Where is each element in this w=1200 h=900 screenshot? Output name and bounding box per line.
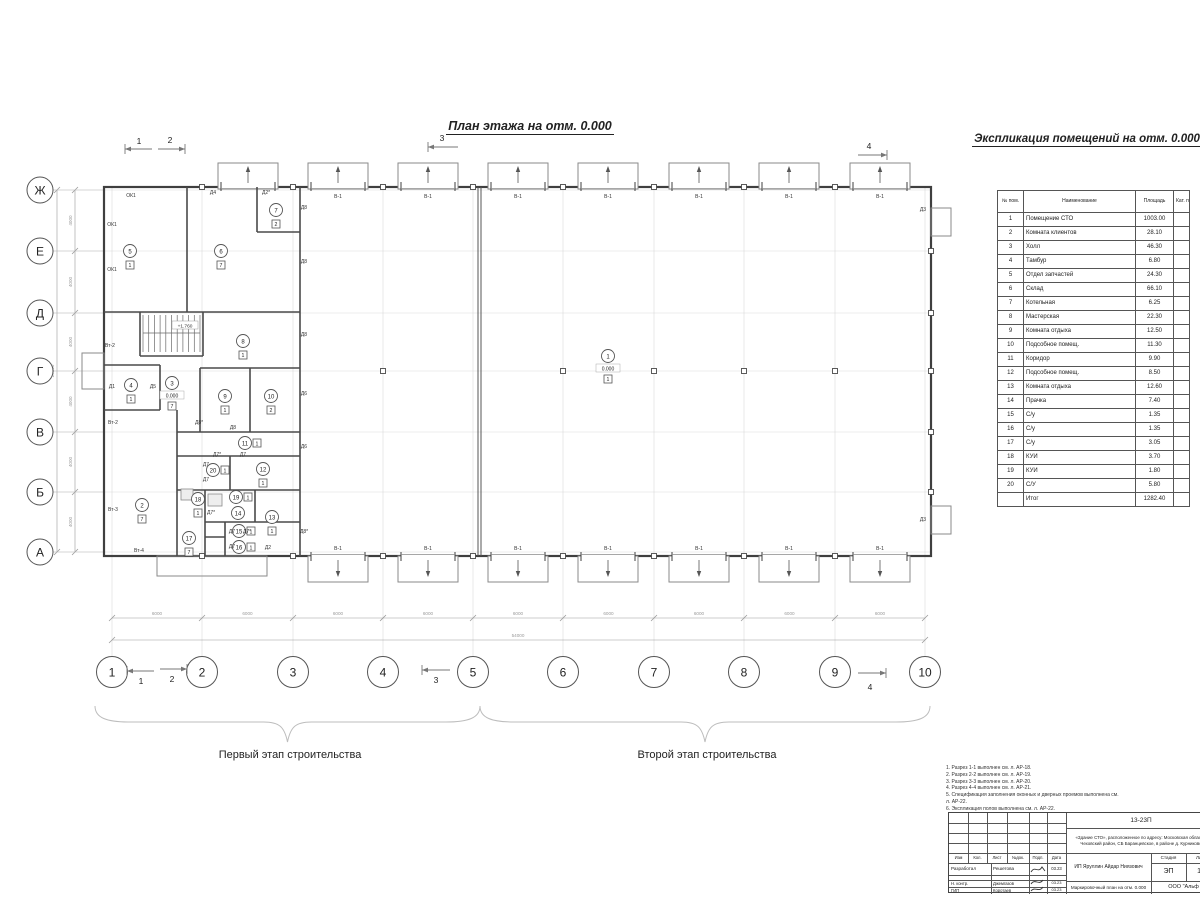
table-row: 3Холл46.30 <box>998 241 1190 255</box>
dim-bay-label: 6000 <box>603 611 614 616</box>
stamp-role-3: ГИП <box>949 887 991 894</box>
room-type-number: 1 <box>224 468 227 474</box>
door-label: Д8 <box>301 259 307 265</box>
stamp-col-dok: №док. <box>1007 853 1029 863</box>
room-number: 17 <box>186 536 193 542</box>
column-marker <box>742 185 747 190</box>
col-header-name: Наименование <box>1024 191 1136 213</box>
section-arrowhead <box>125 147 131 152</box>
dim-bay-label: 6000 <box>152 611 163 616</box>
stamp-name-1: Решетова <box>991 863 1029 875</box>
dim-total-label: 54000 <box>512 633 525 638</box>
table-total-row: Итог1282.40 <box>998 493 1190 507</box>
drawing-sheet: 6000600060006000600060006000600060005400… <box>0 0 1200 900</box>
note-line: 4. Разрез 4-4 выполнен см. л. АР-21. <box>946 785 1124 792</box>
plan-title: План этажа на отм. 0.000 <box>380 119 680 133</box>
door-label: Д7 <box>229 529 235 535</box>
section-label: 3 <box>434 675 439 685</box>
table-row: 15С/у1.35 <box>998 409 1190 423</box>
column-marker <box>652 554 657 559</box>
stamp-name-3: Коротаев <box>991 887 1029 894</box>
door-label: Д7* <box>243 529 251 535</box>
col-header-num: № пом. <box>998 191 1024 213</box>
table-row: 13Комната отдыха12.60 <box>998 381 1190 395</box>
dim-row-label: 4000 <box>68 276 73 287</box>
column-marker <box>471 554 476 559</box>
table-row: 12Подсобное помещ.8.50 <box>998 367 1190 381</box>
table-row: 10Подсобное помещ.11.30 <box>998 339 1190 353</box>
section-label: 1 <box>139 676 144 686</box>
column-marker <box>833 369 838 374</box>
gate-label: В-1 <box>514 546 522 552</box>
dim-bay-label: 6000 <box>875 611 886 616</box>
room-type-number: 1 <box>271 529 274 535</box>
room-type-number: 7 <box>171 404 174 410</box>
dim-bay-label: 6000 <box>333 611 344 616</box>
stamp-col-kol: Кол. <box>968 853 987 863</box>
door-label: Д8 <box>301 205 307 211</box>
section-arrowhead <box>428 145 434 150</box>
door-label: Д7* <box>213 452 221 458</box>
axis-row-label: Д <box>36 307 44 321</box>
room-type-number: 1 <box>247 495 250 501</box>
sheet-header: Лист <box>1186 853 1200 863</box>
col-header-area: Площадь <box>1136 191 1174 213</box>
door-label: Д8 <box>301 332 307 338</box>
room-number: 19 <box>233 495 240 501</box>
gate-label: В-1 <box>876 546 884 552</box>
room-type-number: 7 <box>141 517 144 523</box>
gate-label: В-1 <box>785 546 793 552</box>
room-type-number: 1 <box>250 545 253 551</box>
project-code: 13-23П <box>1066 813 1200 828</box>
stage-brace <box>480 706 930 742</box>
gate-label: В-1 <box>514 194 522 200</box>
section-label: 4 <box>867 141 872 151</box>
fixture <box>208 494 222 506</box>
room-schedule-table: № пом. Наименование Площадь Кат. пом. 1П… <box>997 190 1190 507</box>
room-number: 11 <box>242 441 249 447</box>
door-label: Д7 <box>203 477 209 483</box>
door-label: ОК1 <box>107 222 117 228</box>
column-marker <box>561 554 566 559</box>
door-label: Д4 <box>210 190 216 196</box>
table-row: 14Прачка7.40 <box>998 395 1190 409</box>
table-row: 16С/у1.35 <box>998 423 1190 437</box>
door-label: Д7 <box>229 544 235 550</box>
column-marker <box>291 554 296 559</box>
door-label: Д1 <box>109 384 115 390</box>
door-label: Д5 <box>150 384 156 390</box>
door-label: Д7* <box>207 510 215 516</box>
door-label: Д2* <box>262 190 270 196</box>
room-type-number: 1 <box>129 263 132 269</box>
room-type-number: 7 <box>188 550 191 556</box>
section-arrowhead <box>881 153 887 158</box>
gate-label: В-1 <box>785 194 793 200</box>
axis-col-label: 8 <box>741 666 748 680</box>
col-header-cat: Кат. пом. <box>1174 191 1190 213</box>
porch-right-top <box>931 208 951 236</box>
section-label: 2 <box>168 135 173 145</box>
dim-row-label: 4000 <box>68 456 73 467</box>
door-label: Д7 <box>240 452 246 458</box>
dim-bay-label: 6000 <box>513 611 524 616</box>
room-type-number: 1 <box>256 441 259 447</box>
dim-row-label: 4000 <box>68 215 73 226</box>
column-marker <box>561 185 566 190</box>
stamp-col-data: Дата <box>1047 853 1066 863</box>
stamp-col-list: Лист <box>987 853 1007 863</box>
dim-row-label: 4000 <box>68 396 73 407</box>
elevation-label: 0.000 <box>166 393 179 399</box>
dim-bay-label: 6000 <box>784 611 795 616</box>
gate-label: В-1 <box>695 546 703 552</box>
axis-row-label: Е <box>36 245 44 259</box>
section-label: 2 <box>170 674 175 684</box>
column-marker <box>561 369 566 374</box>
column-marker <box>929 249 934 254</box>
axis-row-label: Г <box>37 365 44 379</box>
building-outline <box>104 187 931 556</box>
column-marker <box>381 554 386 559</box>
axis-col-label: 4 <box>380 666 387 680</box>
column-marker <box>381 369 386 374</box>
door-label: Д7 <box>203 462 209 468</box>
room-number: 14 <box>235 511 242 517</box>
column-marker <box>291 185 296 190</box>
stamp-date-1: 03.23 <box>1047 863 1066 875</box>
table-row: 7Котельная6.25 <box>998 297 1190 311</box>
column-marker <box>200 185 205 190</box>
door-label: Д2 <box>265 545 271 551</box>
table-row: 4Тамбур6.80 <box>998 255 1190 269</box>
doc-title: Маркировочный план на отм. 0.000 <box>1066 881 1151 894</box>
signature-marks <box>1029 863 1047 894</box>
door-label: Д3 <box>920 517 926 523</box>
table-row: 6Склад66.10 <box>998 283 1190 297</box>
notes-list: 1. Разрез 1-1 выполнен см. л. АР-18.2. Р… <box>946 765 1124 812</box>
note-line: 2. Разрез 2-2 выполнен см. л. АР-19. <box>946 772 1124 779</box>
dim-bay-label: 6000 <box>242 611 253 616</box>
room-type-number: 1 <box>242 353 245 359</box>
note-line: 5. Спецификация заполнения оконных и две… <box>946 792 1124 806</box>
table-row: 9Комната отдыха12.50 <box>998 325 1190 339</box>
column-marker <box>929 369 934 374</box>
stage2-label: Второй этап строительства <box>587 749 827 761</box>
axis-col-label: 3 <box>290 666 297 680</box>
room-type-number: 7 <box>220 263 223 269</box>
door-label: Д6 <box>301 444 307 450</box>
column-marker <box>833 185 838 190</box>
dim-row-label: 4000 <box>68 336 73 347</box>
door-label: ОК1 <box>126 193 136 199</box>
column-marker <box>200 554 205 559</box>
gate-label: В-1 <box>424 194 432 200</box>
stage1-label: Первый этап строительства <box>170 749 410 761</box>
stage-header: Стадия <box>1151 853 1186 863</box>
axis-col-label: 5 <box>470 666 477 680</box>
axis-col-label: 9 <box>832 666 839 680</box>
axis-row-label: В <box>36 426 44 440</box>
axis-row-label: А <box>36 546 44 560</box>
room-type-number: 2 <box>270 408 273 414</box>
project-object: «Здание СТО», расположенное по адресу: М… <box>1066 828 1200 853</box>
axis-row-label: Б <box>36 486 44 500</box>
dim-bay-label: 6000 <box>694 611 705 616</box>
porch-right-bottom <box>931 506 951 534</box>
door-label: Вт-4 <box>134 548 144 554</box>
door-label: Вт-2 <box>105 343 115 349</box>
stamp-role-1: Разработал <box>949 863 991 875</box>
axis-col-label: 1 <box>109 666 116 680</box>
gate-label: В-1 <box>334 546 342 552</box>
room-number: 16 <box>236 545 243 551</box>
column-marker <box>742 554 747 559</box>
column-marker <box>652 369 657 374</box>
stair-elevation-label: +1.760 <box>178 324 193 330</box>
table-row: 8Мастерская22.30 <box>998 311 1190 325</box>
section-label: 3 <box>440 133 445 143</box>
gate-label: В-1 <box>334 194 342 200</box>
gate-label: В-1 <box>695 194 703 200</box>
room-number: 15 <box>236 529 243 535</box>
dim-bay-label: 6000 <box>423 611 434 616</box>
door-label: Д8 <box>230 425 236 431</box>
table-row: 19КУИ1.80 <box>998 465 1190 479</box>
column-marker <box>929 311 934 316</box>
section-arrowhead <box>179 147 185 152</box>
table-row: 20С/У5.80 <box>998 479 1190 493</box>
axis-col-label: 2 <box>199 666 206 680</box>
stamp-date-3: 03.23 <box>1047 887 1066 894</box>
stage-brace <box>95 706 480 742</box>
door-label: Д6 <box>301 391 307 397</box>
title-block: Изм Кол. Лист №док. Подп. Дата Разработа… <box>948 812 1200 893</box>
section-arrowhead <box>422 668 428 673</box>
stamp-role-2: Н. контр. <box>949 880 991 887</box>
door-label: Вт-2 <box>108 420 118 426</box>
note-line: 3. Разрез 3-3 выполнен см. л. АР-20. <box>946 779 1124 786</box>
axis-col-label: 7 <box>651 666 658 680</box>
door-label: Д3 <box>920 207 926 213</box>
door-label: Вт-3 <box>108 507 118 513</box>
stage-value: ЭП <box>1151 863 1186 881</box>
column-marker <box>929 490 934 495</box>
column-marker <box>471 185 476 190</box>
schedule-title: Экспликация помещений на отм. 0.000 <box>962 133 1200 145</box>
axis-col-label: 6 <box>560 666 567 680</box>
note-line: 1. Разрез 1-1 выполнен см. л. АР-18. <box>946 765 1124 772</box>
porch-bottom-left <box>157 556 267 576</box>
gate-label: В-1 <box>876 194 884 200</box>
axis-col-label: 10 <box>918 666 932 680</box>
room-type-number: 1 <box>197 511 200 517</box>
stamp-col-izm: Изм <box>949 853 968 863</box>
stamp-date-2: 03.23 <box>1047 880 1066 887</box>
room-number: 20 <box>210 468 217 474</box>
column-marker <box>381 185 386 190</box>
dim-row-label: 4000 <box>68 516 73 527</box>
table-row: 18КУИ3.70 <box>998 451 1190 465</box>
gate-label: В-1 <box>424 546 432 552</box>
room-type-number: 2 <box>275 222 278 228</box>
room-type-number: 1 <box>224 408 227 414</box>
room-type-number: 1 <box>607 377 610 383</box>
door-label: Д8* <box>195 420 203 426</box>
table-row: 11Коридор9.90 <box>998 353 1190 367</box>
room-type-number: 1 <box>130 397 133 403</box>
section-label: 4 <box>868 682 873 692</box>
column-marker <box>929 430 934 435</box>
axis-row-label: Ж <box>34 184 45 198</box>
client-name: ИП Яруллин Айдар Ниязович <box>1066 853 1151 881</box>
table-row: 1Помещение СТО1003.00 <box>998 213 1190 227</box>
company-name: ООО "Альф <box>1151 881 1200 894</box>
room-number: 18 <box>195 497 202 503</box>
elevation-label: 0.000 <box>602 366 615 372</box>
table-row: 2Комната клиентов28.10 <box>998 227 1190 241</box>
section-label: 1 <box>137 136 142 146</box>
gate-label: В-1 <box>604 546 612 552</box>
gate-label: В-1 <box>604 194 612 200</box>
column-marker <box>652 185 657 190</box>
room-number: 12 <box>260 467 267 473</box>
sheet-value: 15 <box>1186 863 1200 881</box>
column-marker <box>833 554 838 559</box>
stamp-name-2: Джемгазов <box>991 880 1029 887</box>
stamp-col-podp: Подп. <box>1029 853 1047 863</box>
room-number: 13 <box>269 515 276 521</box>
column-marker <box>742 369 747 374</box>
room-number: 10 <box>268 394 275 400</box>
room-type-number: 1 <box>262 481 265 487</box>
door-label: ОК1 <box>107 267 117 273</box>
section-arrowhead <box>880 671 886 676</box>
table-row: 17С/у3.05 <box>998 437 1190 451</box>
door-label: Д8* <box>300 529 308 535</box>
table-row: 5Отдел запчастей24.30 <box>998 269 1190 283</box>
